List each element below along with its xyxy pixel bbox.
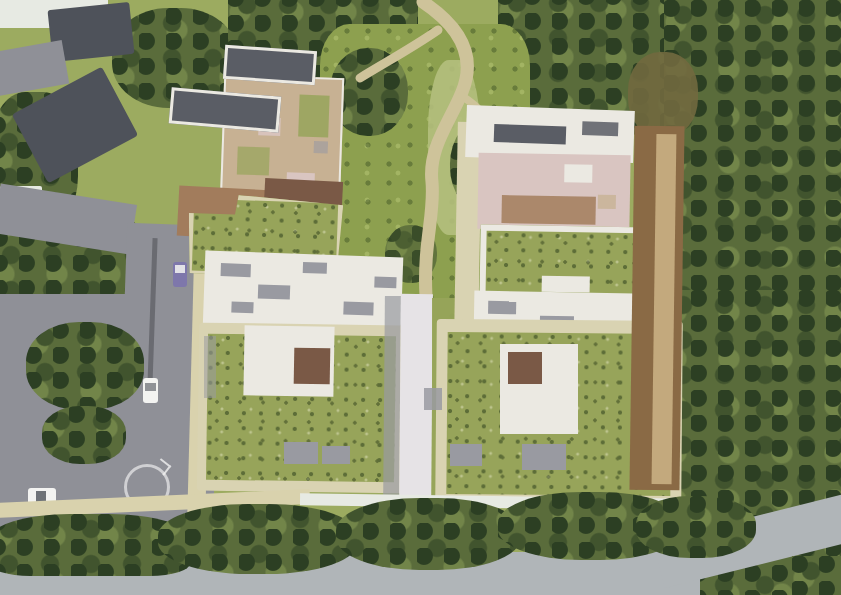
- car-window: [145, 383, 156, 391]
- penthouse-se-brown-roof: [508, 352, 542, 384]
- car-roof: [175, 265, 185, 273]
- rooftop-equipment: [258, 284, 290, 299]
- rooftop-equipment: [343, 301, 373, 315]
- trees-south-5: [636, 496, 756, 558]
- rooftop-equipment: [374, 276, 396, 288]
- trees-south-2: [158, 504, 358, 574]
- rooftop-equipment: [284, 442, 318, 464]
- rooftop-equipment: [231, 302, 253, 314]
- penthouse-sw-brown-roof: [294, 348, 331, 385]
- trees-over-road-1: [26, 322, 144, 410]
- trees-south-3: [336, 498, 521, 570]
- solar-panel-array-ne: [494, 124, 567, 145]
- alley-roof-strip: [383, 296, 401, 508]
- timber-facade-highlight: [652, 134, 677, 484]
- terrace-furniture: [598, 195, 616, 209]
- rooftop-equipment: [221, 263, 251, 277]
- brush-top-right: [628, 52, 698, 137]
- terrace-ne-pink: [477, 153, 630, 232]
- road-stub-top-left: [0, 40, 69, 96]
- rooftop-equipment: [204, 336, 216, 398]
- rooftop-equipment: [303, 262, 327, 274]
- rooftop-skylight: [542, 276, 590, 293]
- solar-panel-array-ne: [582, 121, 618, 136]
- rooftop-equipment: [522, 444, 566, 470]
- driving-car-purple: [173, 262, 187, 287]
- rooftop-equipment: [424, 388, 442, 410]
- rooftop-equipment: [450, 444, 482, 466]
- terrace-canopy: [564, 164, 592, 182]
- trees-corner-southeast: [792, 556, 841, 595]
- rooftop-vent: [314, 141, 328, 153]
- trees-over-road-2: [42, 406, 126, 464]
- forest-right-upper: [664, 0, 841, 310]
- penthouse-se: [500, 344, 578, 434]
- solar-panel-array-nw-1: [223, 45, 317, 85]
- terrace-planting: [298, 95, 329, 138]
- rooftop-equipment: [322, 446, 350, 464]
- terrace-brown-deck: [501, 195, 595, 225]
- terrace-planting: [237, 146, 270, 175]
- driving-car-white: [143, 378, 158, 403]
- aerial-site-rendering: [0, 0, 841, 595]
- rooftop-equipment: [488, 301, 516, 314]
- timber-facade-edge: [629, 126, 684, 491]
